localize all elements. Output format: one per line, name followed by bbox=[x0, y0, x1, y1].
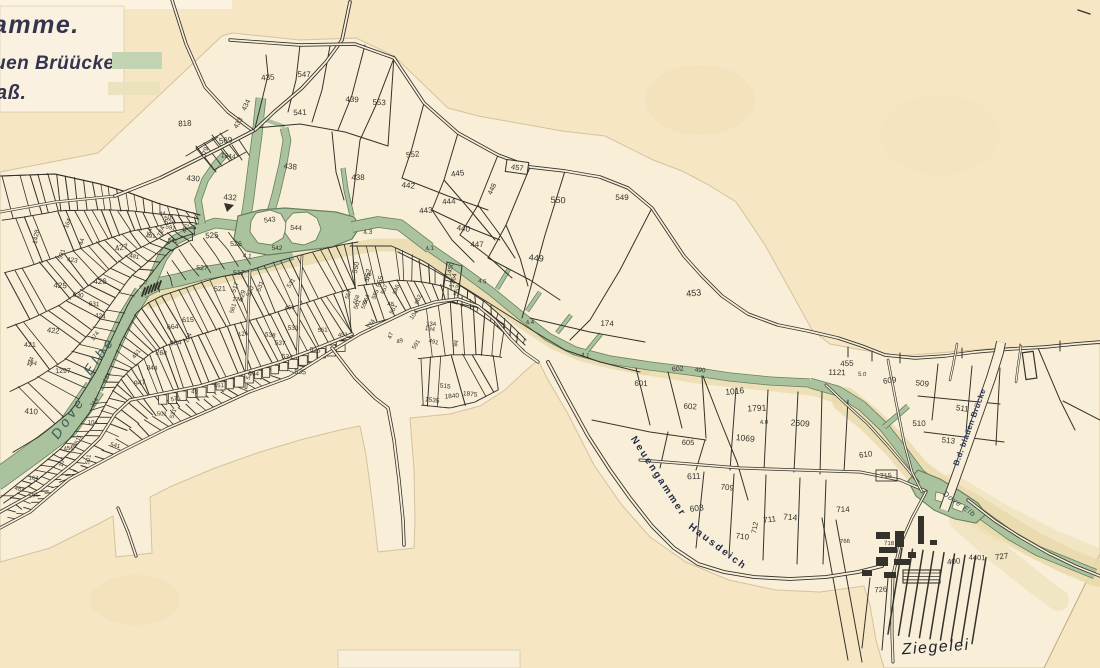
svg-text:422: 422 bbox=[47, 325, 60, 335]
svg-text:174: 174 bbox=[600, 319, 614, 329]
svg-text:4.5: 4.5 bbox=[478, 279, 488, 286]
svg-text:443: 443 bbox=[419, 206, 433, 216]
svg-text:603: 603 bbox=[689, 502, 705, 514]
svg-text:1297: 1297 bbox=[55, 368, 71, 375]
svg-text:1069: 1069 bbox=[735, 432, 755, 444]
svg-text:426: 426 bbox=[93, 277, 107, 286]
svg-text:521: 521 bbox=[214, 286, 226, 293]
svg-text:601: 601 bbox=[634, 379, 648, 388]
svg-text:715: 715 bbox=[880, 473, 892, 481]
svg-text:438: 438 bbox=[351, 173, 365, 182]
svg-text:445: 445 bbox=[450, 168, 465, 179]
svg-text:48: 48 bbox=[387, 302, 394, 308]
svg-text:718: 718 bbox=[884, 541, 895, 547]
svg-text:549: 549 bbox=[615, 193, 629, 202]
svg-text:609: 609 bbox=[882, 375, 897, 386]
svg-text:542: 542 bbox=[272, 245, 283, 252]
svg-text:525: 525 bbox=[205, 231, 219, 241]
svg-text:517: 517 bbox=[233, 270, 245, 277]
svg-text:515: 515 bbox=[439, 382, 451, 390]
svg-text:544: 544 bbox=[290, 225, 302, 233]
svg-text:4.1: 4.1 bbox=[581, 352, 591, 359]
svg-text:435: 435 bbox=[261, 72, 276, 82]
svg-text:526: 526 bbox=[230, 241, 242, 248]
svg-text:709: 709 bbox=[720, 482, 735, 492]
svg-text:455: 455 bbox=[840, 359, 854, 369]
svg-text:439: 439 bbox=[345, 95, 359, 104]
svg-text:164: 164 bbox=[28, 476, 39, 482]
svg-text:844: 844 bbox=[147, 365, 158, 372]
svg-text:602: 602 bbox=[672, 366, 684, 374]
svg-text:727: 727 bbox=[994, 551, 1009, 562]
svg-text:400: 400 bbox=[947, 556, 962, 567]
svg-text:547: 547 bbox=[297, 70, 311, 79]
svg-text:569: 569 bbox=[218, 135, 233, 146]
svg-text:513: 513 bbox=[941, 435, 956, 446]
svg-text:2609: 2609 bbox=[790, 417, 810, 428]
svg-text:453: 453 bbox=[686, 287, 702, 298]
svg-text:425: 425 bbox=[53, 281, 67, 291]
svg-text:4.4: 4.4 bbox=[526, 320, 535, 326]
svg-text:552: 552 bbox=[406, 149, 421, 160]
svg-text:438: 438 bbox=[283, 161, 298, 171]
svg-text:964: 964 bbox=[170, 339, 182, 347]
svg-text:714: 714 bbox=[836, 505, 850, 514]
svg-text:537: 537 bbox=[274, 339, 286, 347]
svg-text:541: 541 bbox=[293, 108, 307, 117]
svg-text:430: 430 bbox=[186, 174, 200, 184]
svg-text:4.3: 4.3 bbox=[363, 229, 373, 237]
svg-text:611: 611 bbox=[687, 471, 701, 482]
svg-text:423: 423 bbox=[66, 256, 78, 264]
svg-text:5.0: 5.0 bbox=[858, 372, 867, 379]
svg-text:602: 602 bbox=[683, 402, 697, 412]
svg-text:1840: 1840 bbox=[444, 392, 459, 400]
svg-text:440: 440 bbox=[456, 223, 471, 234]
svg-text:543: 543 bbox=[264, 216, 277, 224]
svg-text:533: 533 bbox=[287, 325, 299, 333]
svg-text:818: 818 bbox=[178, 119, 192, 129]
svg-text:509: 509 bbox=[915, 378, 930, 388]
svg-text:535: 535 bbox=[294, 369, 306, 377]
svg-text:490: 490 bbox=[694, 367, 706, 375]
svg-text:615: 615 bbox=[182, 317, 194, 324]
svg-text:947: 947 bbox=[134, 379, 146, 387]
svg-text:726: 726 bbox=[874, 584, 887, 594]
svg-text:451: 451 bbox=[338, 332, 349, 339]
svg-text:432: 432 bbox=[223, 193, 237, 203]
svg-text:510: 510 bbox=[912, 419, 926, 428]
svg-text:449: 449 bbox=[528, 252, 544, 263]
svg-text:527: 527 bbox=[196, 265, 208, 272]
svg-text:1875: 1875 bbox=[463, 390, 478, 398]
svg-text:444: 444 bbox=[442, 196, 457, 206]
svg-text:766: 766 bbox=[840, 539, 851, 545]
svg-text:710: 710 bbox=[735, 531, 750, 542]
svg-text:605: 605 bbox=[682, 438, 695, 447]
svg-text:664: 664 bbox=[167, 324, 179, 332]
svg-text:534: 534 bbox=[281, 353, 293, 361]
svg-text:aß.: aß. bbox=[0, 82, 26, 104]
svg-text:631: 631 bbox=[88, 301, 100, 309]
svg-text:1016: 1016 bbox=[725, 385, 745, 397]
svg-text:711: 711 bbox=[763, 514, 777, 524]
svg-text:104: 104 bbox=[88, 420, 99, 426]
svg-text:442: 442 bbox=[401, 180, 416, 190]
svg-text:410: 410 bbox=[24, 406, 39, 416]
svg-text:4.1: 4.1 bbox=[242, 253, 252, 261]
svg-text:447: 447 bbox=[470, 240, 484, 249]
svg-text:4401: 4401 bbox=[969, 553, 986, 562]
svg-text:uen Brüücke: uen Brüücke bbox=[0, 53, 115, 74]
svg-text:511: 511 bbox=[955, 403, 969, 414]
svg-text:1791: 1791 bbox=[747, 402, 767, 413]
svg-text:421: 421 bbox=[24, 342, 36, 349]
svg-text:4.1: 4.1 bbox=[425, 245, 435, 252]
svg-text:424: 424 bbox=[94, 312, 106, 320]
svg-text:4.0: 4.0 bbox=[760, 420, 769, 426]
svg-text:amme.: amme. bbox=[0, 11, 80, 39]
svg-text:550: 550 bbox=[550, 195, 565, 206]
svg-text:457: 457 bbox=[511, 162, 525, 173]
svg-text:451: 451 bbox=[214, 383, 225, 389]
svg-text:630: 630 bbox=[72, 291, 84, 299]
svg-text:551: 551 bbox=[317, 328, 328, 335]
svg-text:1121: 1121 bbox=[828, 368, 846, 378]
svg-text:491: 491 bbox=[146, 234, 157, 240]
svg-text:553: 553 bbox=[372, 98, 386, 107]
svg-text:536: 536 bbox=[309, 346, 321, 354]
svg-text:501: 501 bbox=[157, 411, 168, 417]
svg-text:714: 714 bbox=[783, 511, 798, 522]
svg-text:610: 610 bbox=[858, 449, 873, 460]
